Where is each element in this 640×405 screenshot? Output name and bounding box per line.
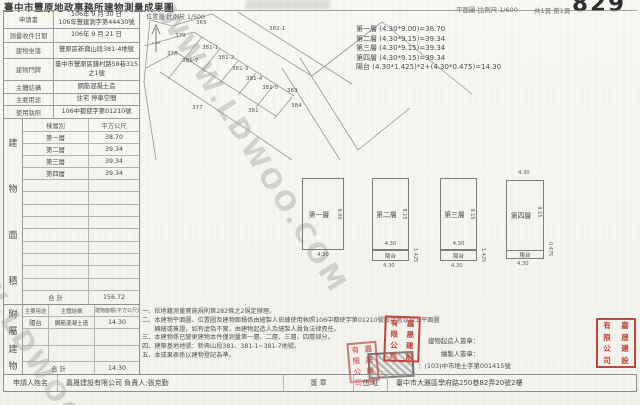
area-row: 第三層 39.34 bbox=[23, 156, 139, 168]
floor-plan-name: 第一層 bbox=[303, 209, 335, 219]
area-row: 第一層 38.70 bbox=[23, 132, 139, 144]
empty-row bbox=[23, 180, 139, 192]
row-label: 主體結構 bbox=[4, 81, 54, 93]
drafter-signature-label: 繪製人簽章： bbox=[441, 349, 479, 358]
building-site: 豐原區新興山段381-4地號 bbox=[54, 43, 139, 58]
annex-row: 陽台 鋼筋混凝土造 14.30 bbox=[23, 317, 139, 329]
annex-table-header: 主要用途 主體結構 建物面積(平方公尺) bbox=[23, 305, 139, 317]
area-table-header: 棟層別 平方公尺 bbox=[23, 119, 139, 132]
parcel-label: 383 bbox=[287, 88, 298, 94]
applicant-address: 臺中市大雅區學府路250巷82弄20號2樓 bbox=[388, 375, 636, 391]
calc-line: 第三層 (4.30*9.15)=39.34 bbox=[356, 44, 501, 54]
table-row: 建物坐落 豐原區新興山段381-4地號 bbox=[4, 43, 139, 59]
table-row: 測量收件日期 106年 9 月 21 日 bbox=[4, 29, 139, 43]
balcony-width-dimension: 4.30 bbox=[451, 263, 463, 269]
table-row: 主要用途 住宅 停車空間 bbox=[4, 94, 139, 106]
drafter-license-no: ：(103)中市地士字第001415號 bbox=[418, 361, 511, 370]
parcel-label: 381-5 bbox=[262, 85, 278, 91]
address-label: 住 址 bbox=[354, 375, 388, 391]
application-doc-no: 106年豐建測字第44430號 bbox=[58, 19, 134, 27]
annex-total-row: 合 計 14.30 bbox=[23, 362, 139, 374]
calc-line: 陽台 (4.30*1.425)*2+(4.30*0.475)=14.30 bbox=[356, 63, 501, 73]
table-row: 使用執照 106中都使字第01210號 bbox=[4, 106, 139, 119]
header-stamp-smudge bbox=[245, 0, 330, 9]
total-area: 156.72 bbox=[89, 291, 139, 304]
row-label: 主要用途 bbox=[4, 94, 54, 105]
empty-row bbox=[23, 217, 139, 229]
width-dimension: 4.30 bbox=[453, 241, 465, 247]
section-side-label: 建 物 面 積 bbox=[4, 119, 23, 304]
parcel-label: 381-4 bbox=[246, 76, 262, 82]
calc-line: 第四層 (4.30*9.15)=39.34 bbox=[356, 54, 501, 64]
annex-total-area: 14.30 bbox=[95, 362, 139, 374]
area-row: 第二層 39.34 bbox=[23, 144, 139, 156]
empty-row bbox=[23, 242, 139, 254]
height-dimension: 9.15 bbox=[536, 206, 542, 217]
balcony-plan: 陽台 bbox=[506, 250, 544, 259]
floor-plan-name: 第三層 bbox=[441, 209, 468, 219]
building-info-table: 申請書 106年 9 月 30 日 106年豐建測字第44430號 測量收件日期… bbox=[3, 10, 140, 374]
balcony-depth-dimension: 0.475 bbox=[547, 242, 553, 256]
company-seal: 有嘉限晟公建司設 bbox=[383, 315, 421, 362]
floor-plan-2: 第二層 9.15 4.30 bbox=[372, 178, 409, 250]
row-label: 使用執照 bbox=[4, 106, 54, 118]
parcel-label: 381-2 bbox=[218, 55, 234, 61]
floor-plan-3: 第三層 9.15 4.30 bbox=[440, 178, 477, 250]
annex-building-section: 附 屬 建 物 主要用途 主體結構 建物面積(平方公尺) 陽台 鋼筋混凝土造 1… bbox=[4, 305, 139, 374]
north-arrow-icon bbox=[152, 25, 160, 52]
parcel-label: 381-1 bbox=[202, 45, 218, 51]
table-row: 申請書 106年 9 月 30 日 106年豐建測字第44430號 bbox=[4, 10, 139, 29]
floor-name: 第一層 bbox=[23, 132, 89, 143]
section-side-label: 附 屬 建 物 bbox=[4, 305, 23, 374]
floor-name: 第二層 bbox=[23, 144, 89, 155]
area-calculations: 第一層 (4.30*9.00)=38.70第二層 (4.30*9.15)=39.… bbox=[356, 25, 501, 73]
floor-area: 39.34 bbox=[89, 144, 139, 155]
floor-area: 39.34 bbox=[89, 156, 139, 167]
parcel-label: 378 bbox=[167, 51, 178, 57]
floor-name: 第三層 bbox=[23, 156, 89, 167]
applicant-row: 申請人姓名 嘉晟建設有限公司 負責人:張克勤 簽 章 住 址 臺中市大雅區學府路… bbox=[3, 374, 637, 392]
parcel-label: 379 bbox=[175, 33, 186, 39]
survey-receipt-date: 106年 9 月 21 日 bbox=[54, 29, 139, 42]
use-permit-no: 106中都使字第01210號 bbox=[54, 106, 139, 118]
height-dimension: 9.00 bbox=[336, 208, 342, 219]
parcel-label: 384 bbox=[291, 103, 302, 109]
parcel-label: 365 bbox=[196, 20, 207, 26]
applicant-name: 嘉晟建設有限公司 負責人:張克勤 bbox=[58, 375, 284, 391]
floor-name: 第四層 bbox=[23, 168, 89, 179]
calc-line: 第一層 (4.30*9.00)=38.70 bbox=[356, 25, 501, 35]
annex-area: 14.30 bbox=[95, 317, 139, 328]
empty-row bbox=[23, 254, 139, 266]
parcel-label: 381-3 bbox=[232, 66, 248, 72]
empty-row bbox=[23, 205, 139, 217]
row-label: 申請書 bbox=[4, 10, 54, 28]
parcel-label: 381-7 bbox=[182, 58, 198, 64]
balcony-width-dimension: 4.30 bbox=[383, 263, 395, 269]
building-area-section: 建 物 面 積 棟層別 平方公尺 第一層 38.70 第二層 39.34 bbox=[4, 119, 139, 305]
building-address: 臺中市豐原區鎌村路58巷315之1號 bbox=[54, 59, 139, 80]
applicant-label: 申請人姓名 bbox=[4, 375, 58, 391]
empty-row bbox=[23, 229, 139, 241]
parcel-label: 377 bbox=[192, 105, 203, 111]
table-row: 主體結構 鋼筋混凝土造 bbox=[4, 81, 139, 94]
parcel-label: 381 bbox=[248, 108, 259, 114]
empty-row bbox=[23, 192, 139, 204]
table-row: 建物門牌 臺中市豐原區鎌村路58巷315之1號 bbox=[4, 59, 139, 81]
floor-plans: 第一層 9.00 4.30 第二層 9.15 4.30 陽台 4.30 1.42… bbox=[288, 158, 640, 303]
application-date: 106年 9 月 30 日 bbox=[71, 11, 122, 19]
row-label: 建物門牌 bbox=[4, 59, 54, 80]
floor-plan-name: 第二層 bbox=[373, 209, 400, 219]
balcony-plan: 陽台 bbox=[372, 250, 409, 261]
floor-area: 39.34 bbox=[89, 168, 139, 179]
parcel-label: 382-1 bbox=[269, 26, 285, 32]
empty-row bbox=[23, 266, 139, 278]
survey-result-sheet: WWW.LDWOO.COM WWW.LDWOO.COM 臺中市豐原地政事務所建物… bbox=[0, 0, 640, 405]
floor-plan-name: 第四層 bbox=[507, 210, 535, 220]
calc-line: 第二層 (4.30*9.15)=39.34 bbox=[356, 35, 501, 45]
floor-plan-1: 第一層 9.00 4.30 bbox=[302, 178, 344, 250]
empty-row bbox=[23, 329, 139, 346]
signature-cell-label: 簽 章 bbox=[284, 375, 354, 391]
annex-use: 陽台 bbox=[23, 317, 49, 328]
height-dimension: 9.15 bbox=[401, 208, 407, 219]
total-label: 合 計 bbox=[23, 362, 95, 374]
top-width-dimension: 4.30 bbox=[518, 170, 530, 176]
total-label: 合 計 bbox=[23, 291, 89, 304]
builder-signature-label: 建物起造人簽章： bbox=[428, 336, 479, 345]
area-row: 第四層 39.34 bbox=[23, 168, 139, 180]
balcony-depth-dimension: 1.425 bbox=[480, 248, 486, 262]
width-dimension: 4.30 bbox=[317, 252, 329, 258]
empty-row bbox=[23, 279, 139, 291]
annex-structure: 鋼筋混凝土造 bbox=[49, 317, 95, 328]
company-seal: 有嘉限晟公建司設 bbox=[596, 318, 636, 368]
main-structure: 鋼筋混凝土造 bbox=[54, 81, 139, 93]
balcony-width-dimension: 4.30 bbox=[517, 261, 529, 267]
row-label: 測量收件日期 bbox=[4, 29, 54, 42]
height-dimension: 9.15 bbox=[469, 208, 475, 219]
main-use: 住宅 停車空間 bbox=[54, 94, 139, 105]
width-dimension: 4.30 bbox=[385, 241, 397, 247]
floor-area: 38.70 bbox=[89, 132, 139, 143]
floor-plan-4: 第四層 9.15 陽台 bbox=[506, 180, 544, 259]
balcony-depth-dimension: 1.425 bbox=[412, 248, 418, 262]
area-total-row: 合 計 156.72 bbox=[23, 291, 139, 304]
balcony-plan: 陽台 bbox=[440, 250, 477, 261]
row-label: 建物坐落 bbox=[4, 43, 54, 58]
empty-row bbox=[23, 346, 139, 363]
handwritten-number: 829 bbox=[572, 0, 626, 17]
